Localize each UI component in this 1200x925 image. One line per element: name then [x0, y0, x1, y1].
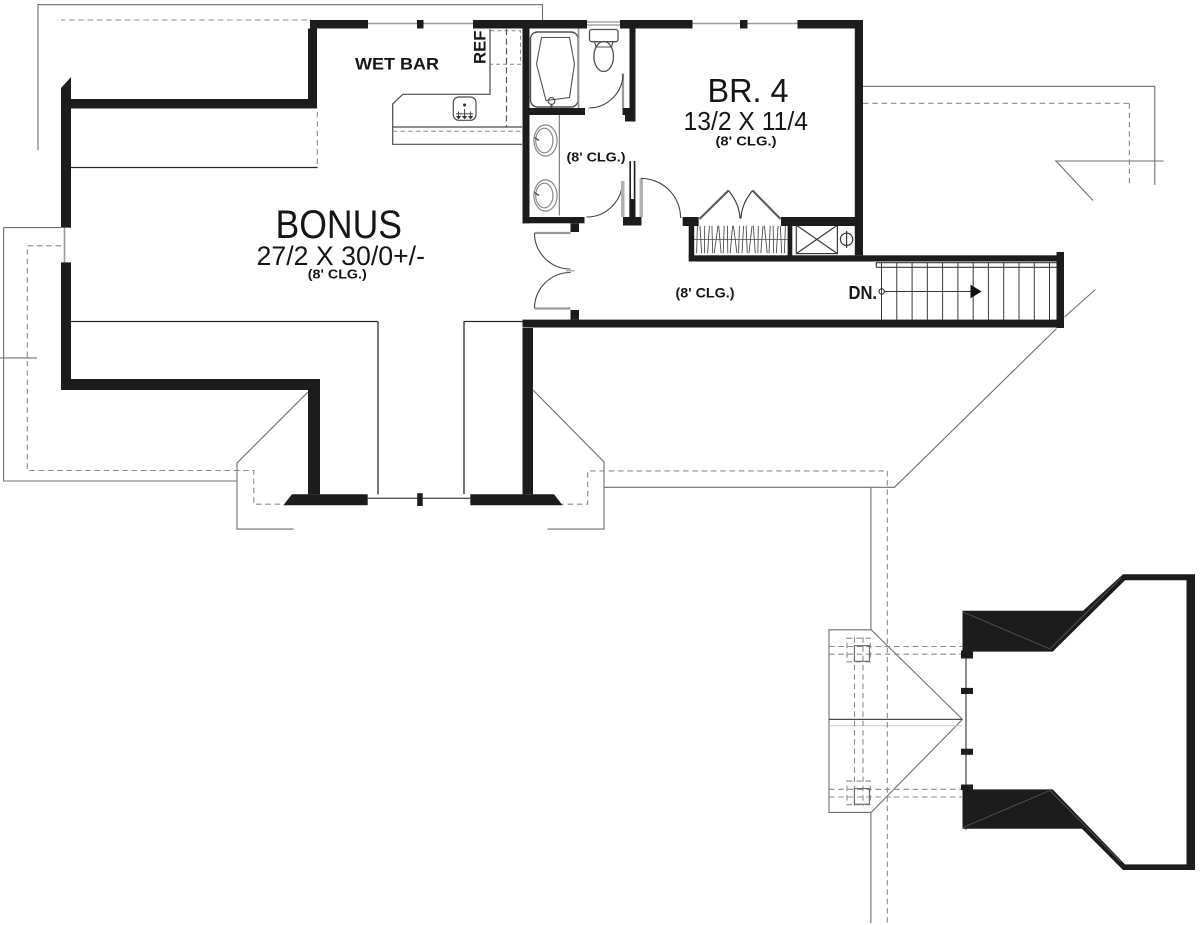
- svg-text:(8' CLG.): (8' CLG.): [716, 133, 777, 148]
- svg-text:(8' CLG.): (8' CLG.): [676, 284, 735, 300]
- svg-text:(8' CLG.): (8' CLG.): [567, 149, 626, 164]
- svg-text:REF: REF: [471, 31, 490, 65]
- svg-text:BR. 4: BR. 4: [708, 72, 789, 109]
- svg-text:DN.: DN.: [849, 283, 878, 303]
- svg-text:13/2 X 11/4: 13/2 X 11/4: [684, 106, 809, 136]
- svg-text:WET BAR: WET BAR: [355, 54, 439, 73]
- svg-text:(8' CLG.): (8' CLG.): [308, 266, 367, 281]
